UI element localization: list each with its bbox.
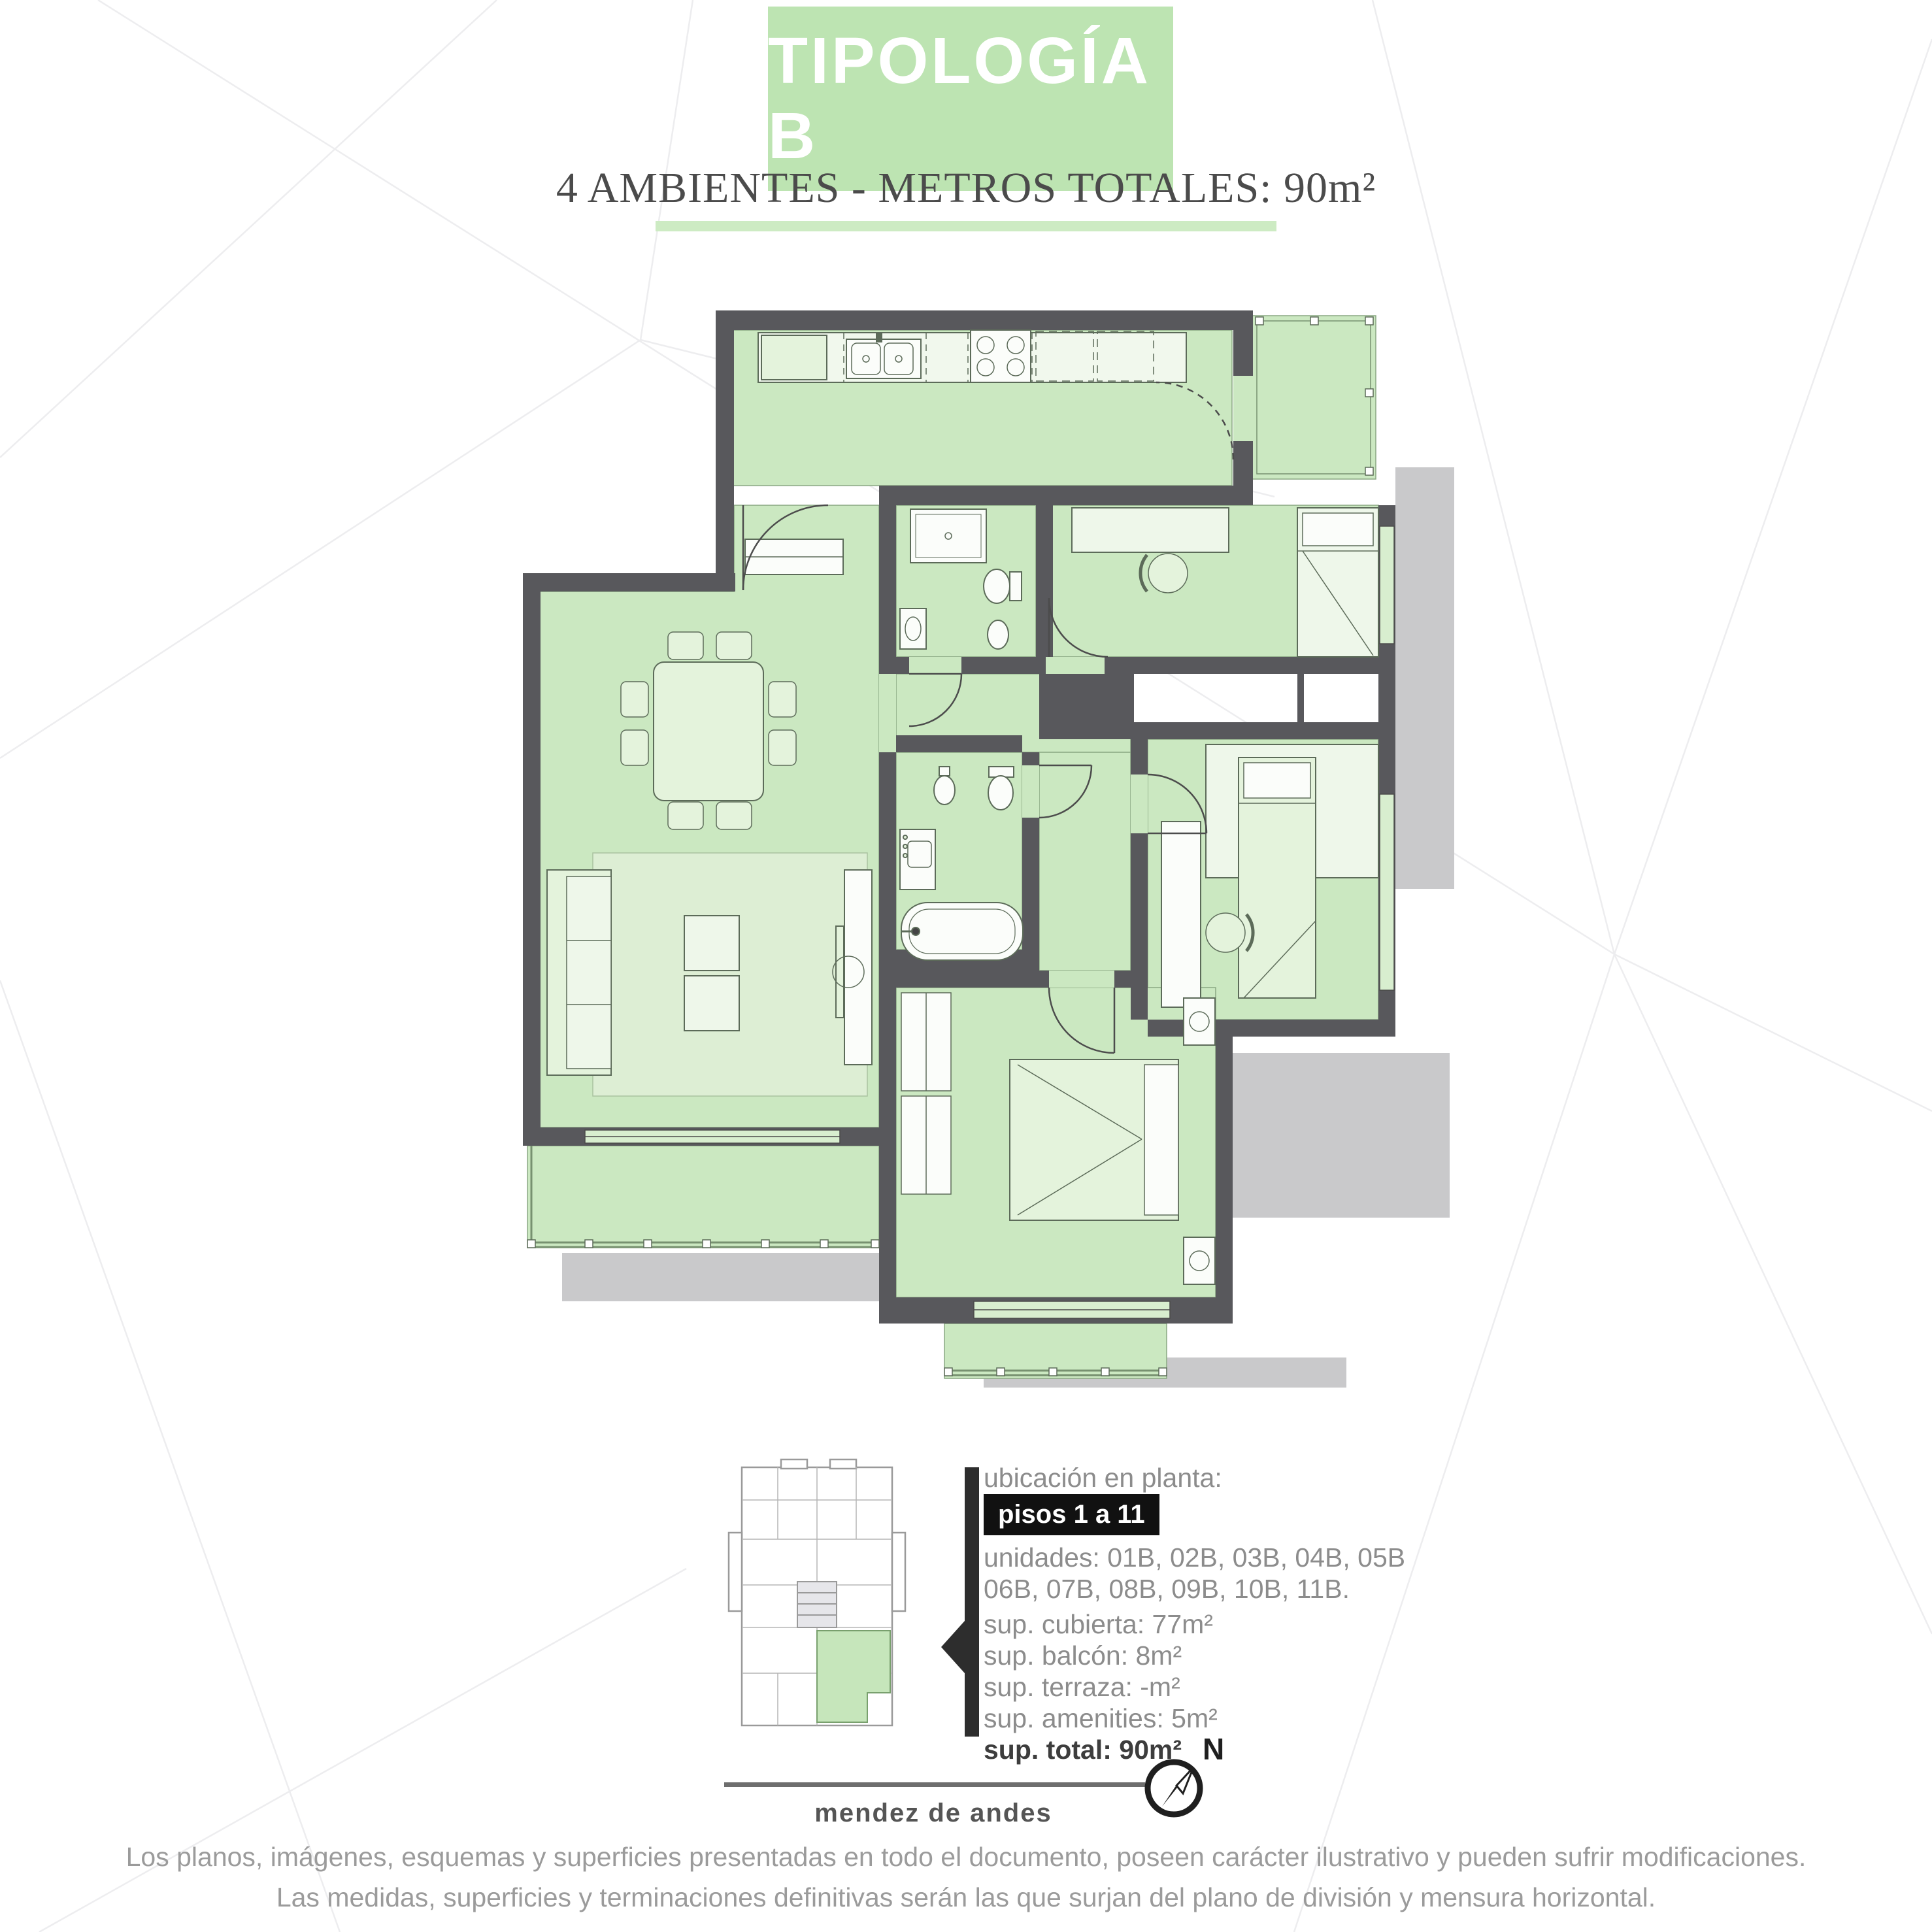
coffee-table [684, 976, 739, 1031]
sup-cubierta: sup. cubierta: 77m² [984, 1609, 1213, 1640]
disclaimer-line-2: Las medidas, superficies y terminaciones… [0, 1877, 1932, 1918]
kitchen-sink [846, 334, 921, 378]
bidet [988, 620, 1008, 649]
page-subtitle: 4 AMBIENTES - METROS TOTALES: 90m² [0, 163, 1932, 213]
corridor [1039, 752, 1131, 971]
typology-sheet: TIPOLOGÍA B 4 AMBIENTES - METROS TOTALES… [0, 0, 1932, 1932]
desk-2 [1161, 822, 1201, 1007]
location-label: ubicación en planta: [984, 1463, 1222, 1493]
floor-plan [487, 278, 1467, 1389]
shower [910, 509, 986, 563]
toilet [984, 569, 1022, 603]
units-line-1: unidades: 01B, 02B, 03B, 04B, 05B [984, 1542, 1405, 1573]
terrace-bottom-left [527, 1146, 879, 1248]
building-location-plan [719, 1454, 915, 1739]
toilet-2 [988, 767, 1014, 810]
vanity [900, 829, 935, 890]
desk-1 [1072, 508, 1229, 552]
page-title: TIPOLOGÍA B [768, 24, 1173, 174]
disclaimer: Los planos, imágenes, esquemas y superfi… [0, 1837, 1932, 1918]
compass-north-label: N [1203, 1733, 1224, 1766]
fridge [761, 335, 827, 380]
subtitle-underline [656, 221, 1276, 231]
dining-table [654, 662, 763, 801]
bed-2 [1239, 758, 1316, 998]
bed-3 [1010, 1059, 1178, 1220]
floors-badge: pisos 1 a 11 [984, 1494, 1159, 1535]
sup-balcon: sup. balcón: 8m² [984, 1641, 1182, 1671]
bathtub [901, 903, 1023, 960]
units-line-2: 06B, 07B, 08B, 09B, 10B, 11B. [984, 1574, 1350, 1605]
location-pointer [939, 1467, 980, 1737]
rug [593, 853, 867, 1096]
street-label: mendez de andes [724, 1799, 1142, 1828]
sofa [547, 870, 611, 1075]
disclaimer-line-1: Los planos, imágenes, esquemas y superfi… [0, 1837, 1932, 1877]
elevator-core [797, 1582, 837, 1627]
balcony-top-right [1252, 316, 1376, 479]
bathroom1-sink [900, 608, 926, 649]
sup-amenities: sup. amenities: 5m² [984, 1703, 1218, 1734]
bed-1 [1297, 508, 1378, 657]
compass-icon: N [1136, 1733, 1241, 1825]
street-line [724, 1782, 1145, 1787]
coffee-table [684, 916, 739, 971]
sup-terraza: sup. terraza: -m² [984, 1672, 1180, 1703]
stove [971, 330, 1031, 382]
